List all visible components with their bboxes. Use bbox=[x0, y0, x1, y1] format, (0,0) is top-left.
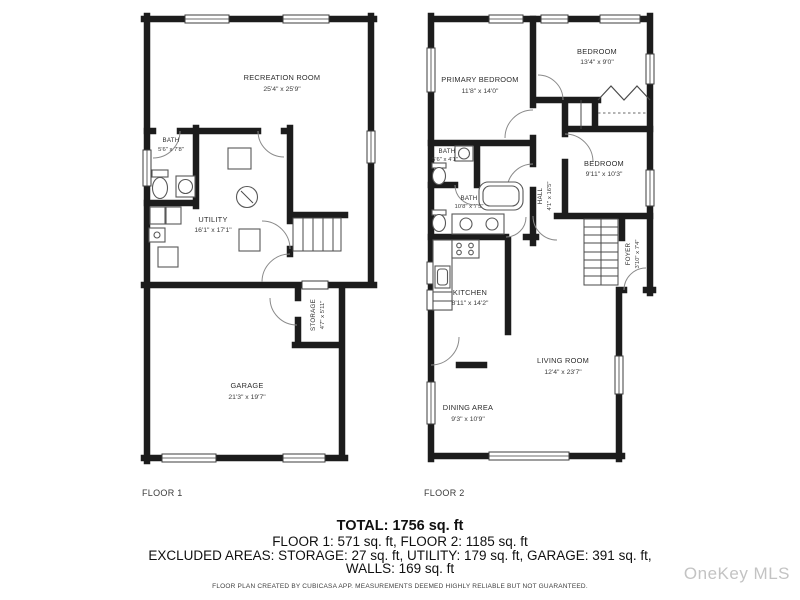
floor2-stairs bbox=[584, 219, 618, 285]
room-dims-bath-f1: 5'6" x 7'8" bbox=[158, 147, 184, 153]
room-label-bath-f1: BATH bbox=[162, 137, 179, 144]
room-dims-utility: 16'1" x 17'1" bbox=[194, 227, 232, 234]
room-label-storage: STORAGE bbox=[310, 299, 317, 331]
room-label-hall-group: HALL 4'1" x 16'5" bbox=[537, 181, 553, 210]
toilet-bowl bbox=[153, 178, 168, 199]
room-dims-bedroom-right: 9'11" x 10'3" bbox=[586, 171, 623, 178]
room-label-utility: UTILITY bbox=[198, 215, 227, 224]
room-dims-bath-main: 10'8" x 7'5" bbox=[454, 204, 483, 210]
utility-appliance bbox=[228, 148, 251, 169]
excluded-areas-text: EXCLUDED AREAS: STORAGE: 27 sq. ft, UTIL… bbox=[0, 549, 800, 563]
area-summary: TOTAL: 1756 sq. ft FLOOR 1: 571 sq. ft, … bbox=[0, 519, 800, 590]
walls-area-text: WALLS: 169 sq. ft bbox=[0, 562, 800, 576]
room-dims-bath-small: 5'6" x 4'1" bbox=[432, 157, 458, 163]
room-label-recreation: RECREATION ROOM bbox=[244, 73, 321, 82]
room-dims-bedroom-top: 13'4" x 9'0" bbox=[580, 59, 614, 66]
room-label-primary-bedroom: PRIMARY BEDROOM bbox=[441, 75, 518, 84]
utility-appliance bbox=[158, 247, 178, 267]
room-label-storage-group: STORAGE 4'7" x 5'11" bbox=[310, 299, 326, 331]
toilet-bowl bbox=[433, 215, 446, 232]
room-dims-primary-bedroom: 11'8" x 14'0" bbox=[462, 88, 499, 95]
room-label-garage: GARAGE bbox=[230, 381, 263, 390]
room-label-foyer-group: FOYER 3'10" x 7'4" bbox=[625, 239, 641, 268]
total-area-text: TOTAL: 1756 sq. ft bbox=[0, 519, 800, 535]
room-label-bedroom-top: BEDROOM bbox=[577, 47, 617, 56]
room-label-foyer: FOYER bbox=[625, 242, 632, 265]
room-dims-living-room: 12'4" x 23'7" bbox=[544, 369, 582, 376]
toilet-tank bbox=[152, 170, 168, 177]
floor2-plan: PRIMARY BEDROOM 11'8" x 14'0" BEDROOM 13… bbox=[424, 15, 654, 498]
room-dims-hall: 4'1" x 16'5" bbox=[547, 181, 553, 210]
dryer bbox=[166, 207, 181, 224]
floor-areas-text: FLOOR 1: 571 sq. ft, FLOOR 2: 1185 sq. f… bbox=[0, 535, 800, 549]
room-label-dining-area: DINING AREA bbox=[443, 403, 493, 412]
onekey-mls-watermark: OneKey MLS bbox=[684, 564, 790, 584]
washer bbox=[150, 207, 165, 224]
room-label-kitchen: KITCHEN bbox=[453, 288, 487, 297]
floor1-plan: RECREATION ROOM 25'4" x 25'9" BATH 5'6" … bbox=[142, 15, 375, 498]
floor1-stairs bbox=[293, 218, 341, 251]
room-dims-foyer: 3'10" x 7'4" bbox=[635, 239, 641, 268]
room-label-bath-small: BATH bbox=[438, 148, 455, 155]
utility-appliance bbox=[239, 229, 260, 251]
room-dims-recreation: 25'4" x 25'9" bbox=[263, 86, 301, 93]
room-label-living-room: LIVING ROOM bbox=[537, 356, 589, 365]
room-label-bath-main: BATH bbox=[460, 195, 477, 202]
disclaimer-text: FLOOR PLAN CREATED BY CUBICASA APP. MEAS… bbox=[0, 583, 800, 590]
toilet-bowl bbox=[433, 168, 446, 185]
floor2-label: FLOOR 2 bbox=[424, 488, 465, 498]
closet-bifold-doors bbox=[598, 86, 650, 100]
floor1-fixtures bbox=[149, 148, 260, 267]
room-dims-storage: 4'7" x 5'11" bbox=[320, 301, 326, 330]
floor-plan-page: RECREATION ROOM 25'4" x 25'9" BATH 5'6" … bbox=[0, 0, 800, 600]
room-dims-kitchen: 8'11" x 14'2" bbox=[452, 300, 489, 307]
room-label-bedroom-right: BEDROOM bbox=[584, 159, 624, 168]
room-label-hall: HALL bbox=[537, 187, 544, 204]
floor1-label: FLOOR 1 bbox=[142, 488, 183, 498]
floor-plan-canvas: RECREATION ROOM 25'4" x 25'9" BATH 5'6" … bbox=[0, 0, 800, 512]
room-dims-garage: 21'3" x 19'7" bbox=[228, 394, 266, 401]
stove bbox=[452, 240, 479, 258]
room-dims-dining-area: 9'3" x 10'9" bbox=[451, 416, 485, 423]
